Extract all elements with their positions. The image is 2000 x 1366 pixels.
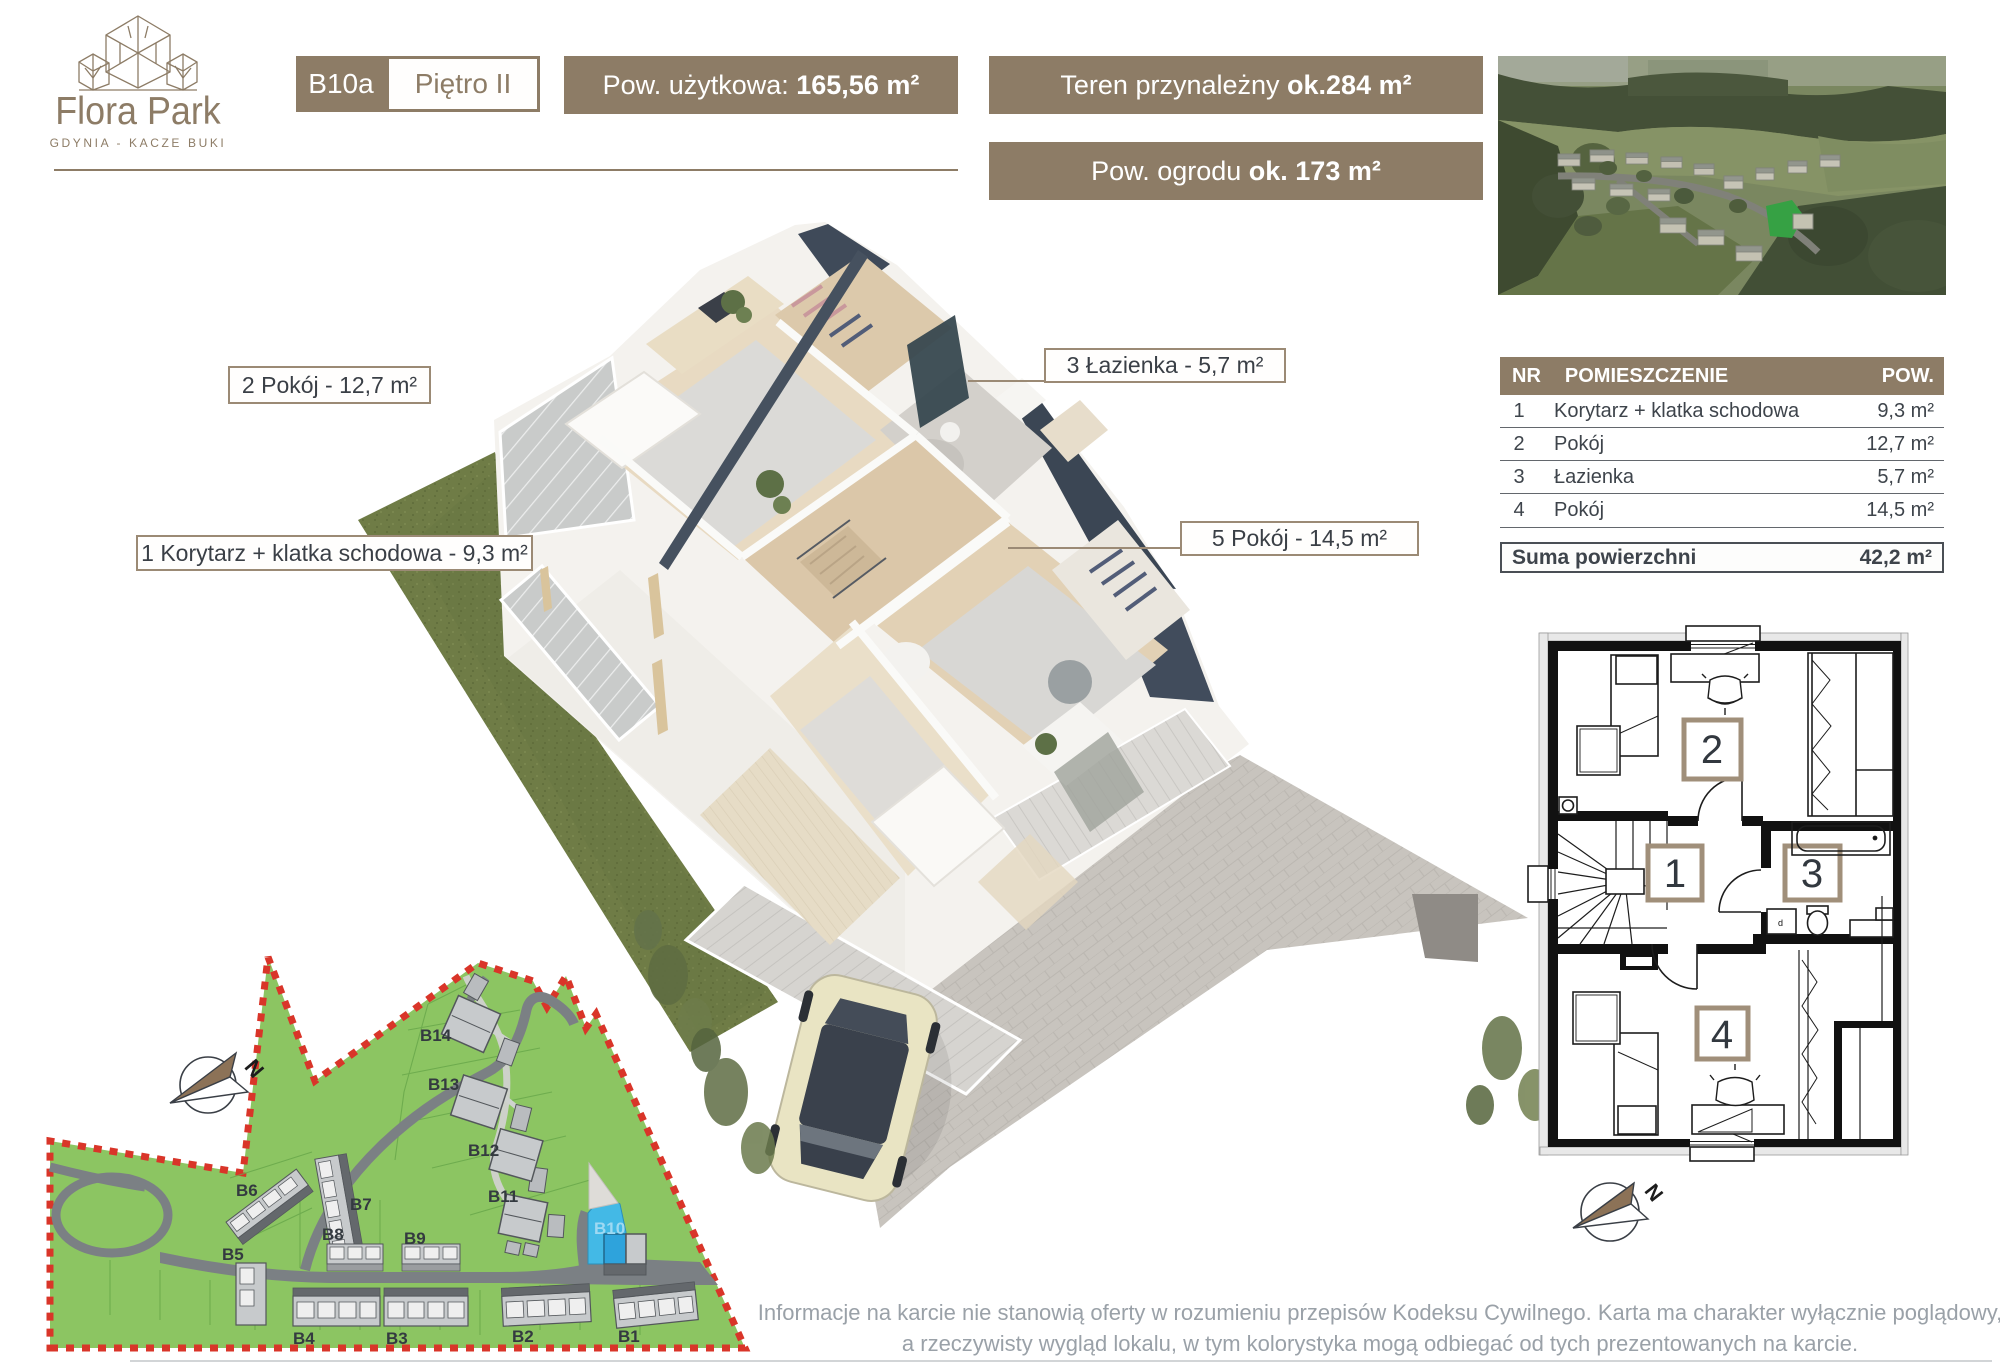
- svg-text:B1: B1: [618, 1327, 640, 1346]
- svg-text:2: 2: [1701, 728, 1723, 772]
- svg-text:B7: B7: [350, 1195, 372, 1214]
- svg-text:N: N: [1640, 1180, 1667, 1206]
- svg-text:B9: B9: [404, 1229, 426, 1248]
- svg-text:d: d: [1778, 918, 1783, 928]
- svg-text:1: 1: [1664, 852, 1686, 896]
- svg-text:B2: B2: [512, 1327, 534, 1346]
- svg-text:3: 3: [1801, 852, 1823, 896]
- svg-text:B12: B12: [468, 1141, 499, 1160]
- svg-text:B14: B14: [420, 1026, 452, 1045]
- svg-text:B10: B10: [594, 1219, 625, 1238]
- svg-text:B5: B5: [222, 1245, 244, 1264]
- svg-text:B3: B3: [386, 1329, 408, 1348]
- svg-text:B13: B13: [428, 1075, 459, 1094]
- svg-text:B6: B6: [236, 1181, 258, 1200]
- svg-text:B4: B4: [293, 1329, 315, 1348]
- svg-text:B8: B8: [322, 1225, 344, 1244]
- svg-text:B11: B11: [488, 1187, 518, 1206]
- svg-text:4: 4: [1711, 1013, 1733, 1057]
